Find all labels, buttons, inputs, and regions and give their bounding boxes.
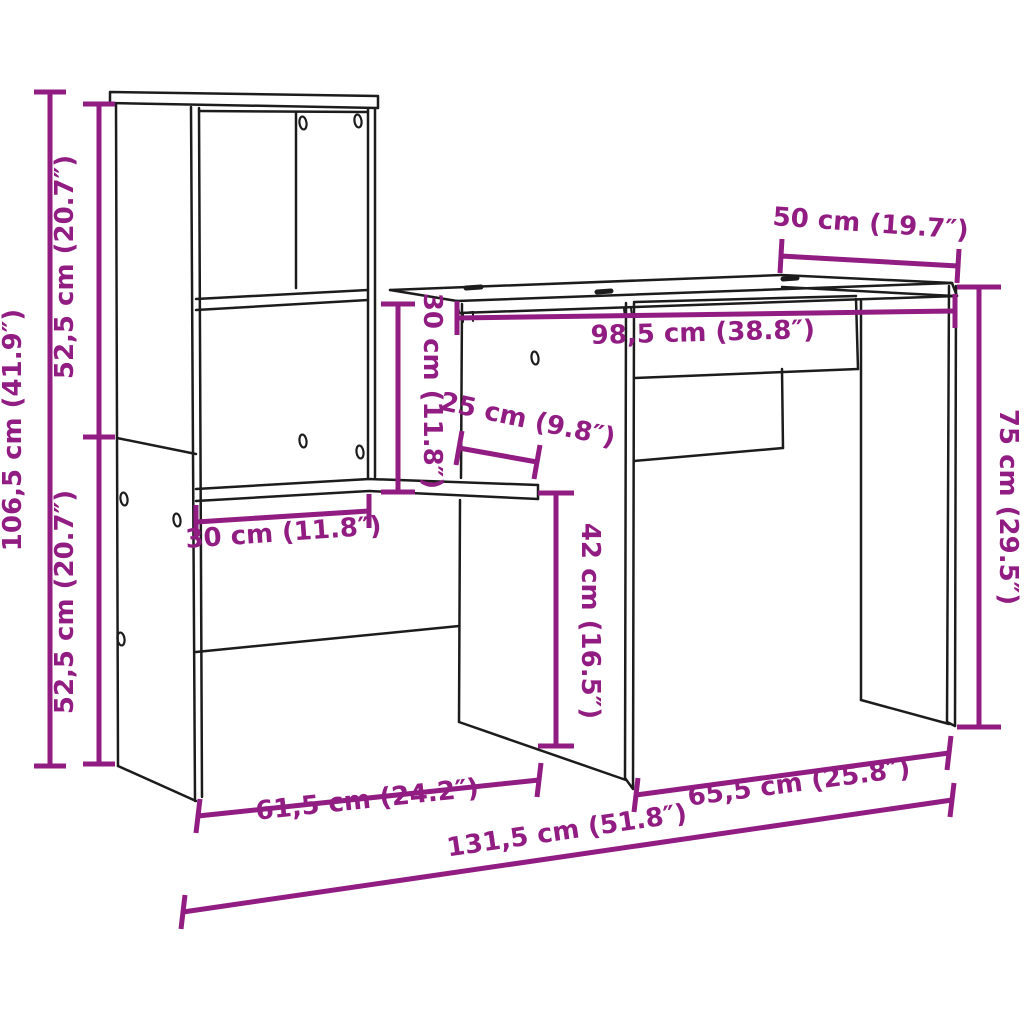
desk-left-panel-outline (459, 303, 634, 789)
dimension-diagram: 106,5 cm (41.9″) 52,5 cm (20.7″) 52,5 cm… (0, 0, 1024, 1024)
dim-upper-section-height-label: 52,5 cm (20.7″) (50, 155, 80, 379)
dim-section-heights (83, 104, 115, 764)
dim-shelf-depth (456, 431, 540, 479)
furniture-outline (110, 92, 957, 801)
dim-lower-section-height-label: 52,5 cm (20.7″) (50, 490, 80, 714)
dim-clearance-height (381, 304, 415, 492)
dim-shelf-unit-width-label: 61,5 cm (24.2″) (254, 773, 480, 826)
dim-desktop-width-label: 98,5 cm (38.8″) (590, 315, 815, 351)
diagram-canvas: 106,5 cm (41.9″) 52,5 cm (20.7″) 52,5 cm… (0, 0, 1024, 1024)
dim-desk-depth-label: 50 cm (19.7″) (772, 202, 970, 246)
dim-shelf-depth-label: 25 cm (9.8″) (437, 387, 618, 453)
screw-hole-icon (299, 434, 308, 448)
dim-shelf-width-label: 30 cm (11.8″) (184, 511, 382, 555)
desk-right-panel-outline (861, 286, 956, 726)
screw-hole-icon (531, 351, 540, 365)
shelf-unit-outline (110, 92, 538, 801)
screw-hole-icon (120, 492, 129, 506)
dim-under-shelf-height (538, 493, 574, 746)
dim-under-shelf-height-label: 42 cm (16.5″) (575, 523, 605, 719)
screw-hole-icon (117, 632, 126, 646)
screw-hole-icon (354, 114, 363, 128)
dim-desk-height-label: 75 cm (29.5″) (993, 409, 1023, 605)
dim-desk-width-label: 65,5 cm (25.8″) (686, 754, 912, 813)
screw-hole-icon (173, 513, 182, 527)
screw-holes (117, 114, 540, 646)
screw-hole-icon (356, 445, 365, 459)
dim-total-height-label: 106,5 cm (41.9″) (0, 309, 28, 551)
screw-hole-icon (299, 116, 308, 130)
